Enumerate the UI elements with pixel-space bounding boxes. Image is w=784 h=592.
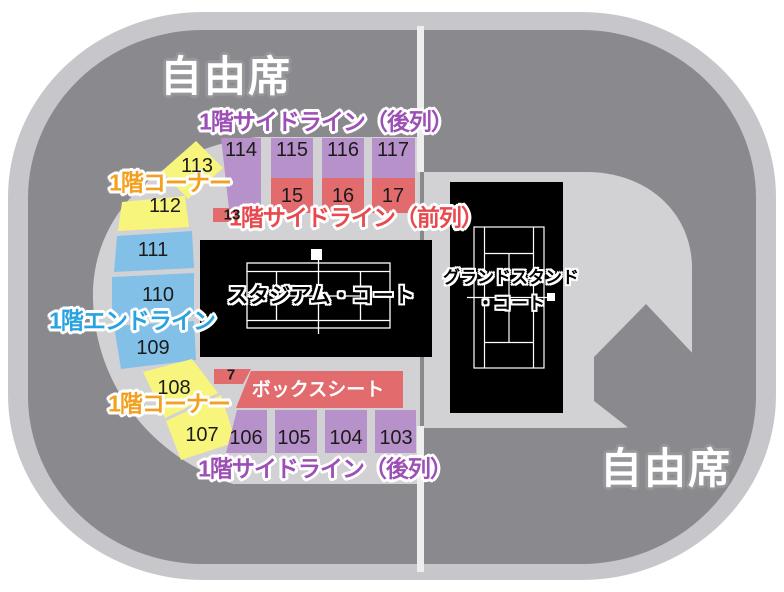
umpire-chair-marker xyxy=(311,249,322,260)
section-104-number[interactable]: 104 xyxy=(329,428,362,448)
grandstand-court-label: グランドスタンド・コート xyxy=(431,265,591,317)
sideline-back-bottom-label: 1階サイドライン（後列） xyxy=(198,458,452,481)
section-109-number[interactable]: 109 xyxy=(136,338,169,358)
section-13-number[interactable]: 13 xyxy=(224,208,241,223)
section-111-number[interactable]: 111 xyxy=(138,240,168,260)
aisle-gap-top xyxy=(417,26,424,172)
section-114-number[interactable]: 114 xyxy=(225,140,257,160)
section-113-number[interactable]: 113 xyxy=(181,156,213,176)
grandstand-court-label-line2: ・コート xyxy=(431,291,591,317)
aisle-gap-bottom xyxy=(417,426,424,572)
section-117-number[interactable]: 117 xyxy=(377,140,409,160)
sideline-back-top-label: 1階サイドライン（後列） xyxy=(199,111,453,134)
stadium-seating-map: 自由席 自由席 1階サイドライン（後列） 1階コーナー 1階サイドライン（前列）… xyxy=(0,0,784,592)
section-115-number[interactable]: 115 xyxy=(276,140,308,160)
endline-label: 1階エンドライン xyxy=(49,310,215,333)
box-seat-label: ボックスシート xyxy=(252,381,384,400)
section-103-number[interactable]: 103 xyxy=(379,428,412,448)
section-106-number[interactable]: 106 xyxy=(229,428,262,448)
stadium-court-label: スタジアム・コート xyxy=(227,286,415,307)
section-105-number[interactable]: 105 xyxy=(277,428,310,448)
free-seating-label-top: 自由席 xyxy=(160,56,292,98)
section-108-number[interactable]: 108 xyxy=(157,378,190,398)
section-17-number[interactable]: 17 xyxy=(382,186,404,206)
sideline-front-label: 1階サイドライン（前列） xyxy=(229,207,483,230)
section-110-number[interactable]: 110 xyxy=(142,285,174,305)
grandstand-court-label-line1: グランドスタンド xyxy=(431,265,591,291)
section-107-number[interactable]: 107 xyxy=(185,425,218,445)
section-112-number[interactable]: 112 xyxy=(149,196,181,216)
section-16-number[interactable]: 16 xyxy=(332,186,354,206)
section-7-number[interactable]: 7 xyxy=(227,368,235,383)
section-116-number[interactable]: 116 xyxy=(327,140,359,160)
section-15-number[interactable]: 15 xyxy=(281,186,303,206)
free-seating-label-bottom: 自由席 xyxy=(600,448,732,490)
